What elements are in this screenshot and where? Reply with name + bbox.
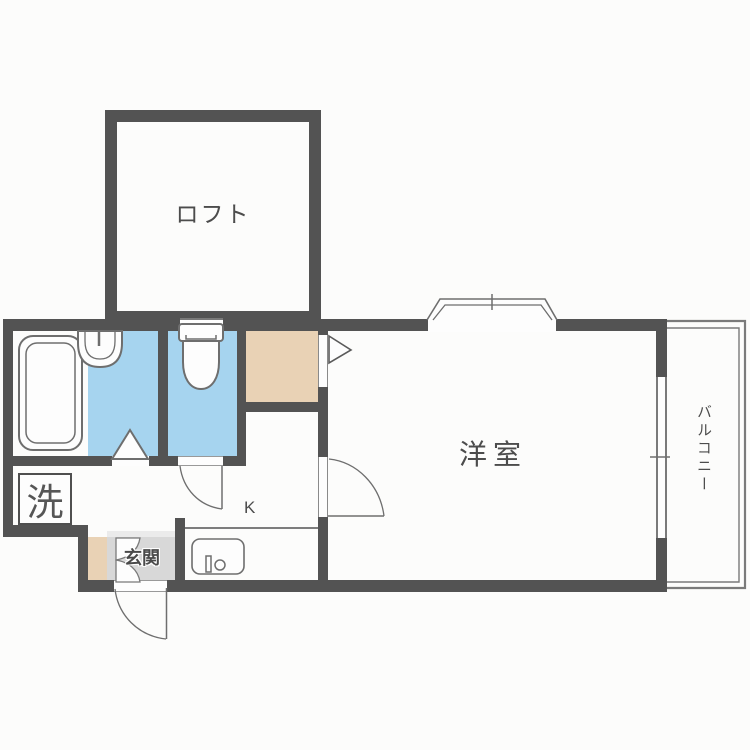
balcony-label: バルコニー: [693, 404, 714, 494]
bath-door-marker: [112, 430, 148, 459]
toilet-bowl: [183, 341, 219, 389]
western-room-label: 洋室: [423, 433, 563, 473]
closet-opening-marker: [329, 336, 351, 363]
kitchen-label: K: [244, 498, 255, 518]
room-door-arc: [329, 459, 384, 516]
loft-label: ロフト: [105, 195, 321, 229]
entrance-label: 玄関: [124, 544, 160, 570]
floor-plan: ロフト 洋室 バルコニー 玄関 K 洗: [0, 0, 750, 750]
bathtub: [19, 336, 82, 450]
laundry-box: 洗: [18, 473, 72, 525]
kitchen-drain: [215, 560, 225, 570]
toilet-door-arc: [180, 466, 222, 509]
fixtures-layer: [0, 0, 750, 750]
entrance-door-arc: [115, 589, 166, 639]
laundry-label: 洗: [27, 472, 64, 526]
kitchen-faucet: [206, 556, 211, 572]
